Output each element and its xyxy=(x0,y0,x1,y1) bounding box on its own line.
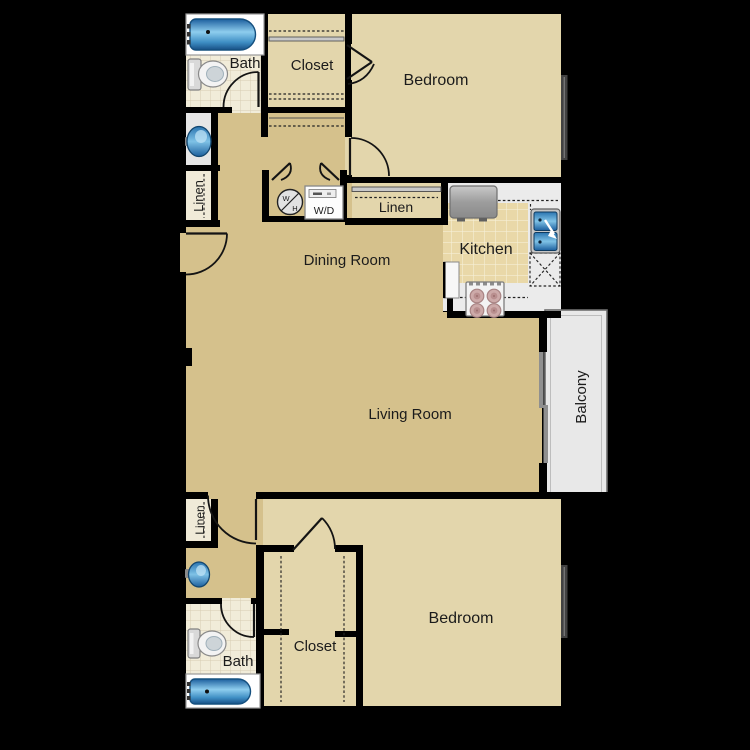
wall-segment xyxy=(261,113,268,137)
wall-segment xyxy=(180,541,218,548)
wall-segment xyxy=(561,8,568,75)
water-heater xyxy=(278,190,303,215)
label-dining-room: Dining Room xyxy=(304,252,391,269)
wall-segment xyxy=(335,631,356,637)
sink-drain xyxy=(538,240,541,243)
stove xyxy=(466,282,504,317)
label-living-room: Living Room xyxy=(368,406,451,423)
bath-top-threshold xyxy=(232,107,261,113)
wall-segment xyxy=(211,165,218,227)
tub-faucet xyxy=(187,682,191,686)
entry-threshold xyxy=(180,233,186,272)
tub-faucet xyxy=(187,696,191,700)
kitchen-sink xyxy=(531,209,560,253)
label-bath-top: Bath xyxy=(230,55,261,72)
bathtub-top xyxy=(186,14,264,55)
stove-knob xyxy=(483,283,487,286)
dishwasher xyxy=(443,262,459,298)
closet-rod xyxy=(269,37,344,41)
bathtub-basin xyxy=(190,19,255,50)
wall-segment xyxy=(262,170,269,222)
toilet-tank-highlight xyxy=(190,633,194,654)
label-closet-top: Closet xyxy=(291,57,334,74)
dishwasher-edge xyxy=(443,262,446,298)
washer-dryer-knob xyxy=(327,193,331,196)
wall-segment xyxy=(256,545,294,552)
toilet-tank-highlight xyxy=(190,63,194,86)
wall-segment xyxy=(180,8,186,233)
wall-segment xyxy=(256,492,608,499)
living-room-floor xyxy=(186,312,542,492)
bath-bottom-threshold xyxy=(222,598,251,604)
stove-knob xyxy=(469,283,473,286)
wall-segment xyxy=(180,499,186,712)
label-bedroom-top: Bedroom xyxy=(404,72,469,89)
bedroom-top-floor xyxy=(351,14,561,177)
label-linen-lower: Linen xyxy=(193,505,207,534)
tub-drain xyxy=(205,690,209,694)
dishwasher-body xyxy=(444,262,459,298)
wall-segment xyxy=(345,8,352,44)
refrigerator xyxy=(450,186,497,222)
label-wd: W/D xyxy=(314,205,335,217)
refrigerator-foot xyxy=(457,218,465,222)
refrigerator-body xyxy=(450,186,497,218)
wall-segment xyxy=(180,220,220,227)
wall-segment xyxy=(345,218,448,225)
wall-segment xyxy=(180,107,232,113)
refrigerator-foot xyxy=(479,218,487,222)
label-bath-bottom: Bath xyxy=(223,653,254,670)
sink-highlight xyxy=(196,565,206,576)
toilet-seat xyxy=(207,67,224,82)
wall-segment xyxy=(561,499,568,565)
linen-right-shelf xyxy=(352,187,441,192)
bathtub-basin xyxy=(190,679,250,704)
wall-segment xyxy=(447,297,453,318)
bedroom-bottom-floor xyxy=(263,499,561,707)
wall-segment xyxy=(180,8,568,14)
label-closet-bottom: Closet xyxy=(294,638,337,655)
wall-segment xyxy=(539,316,547,352)
stove-knob xyxy=(497,283,501,286)
wall-segment xyxy=(356,545,363,712)
wall-segment xyxy=(264,629,289,635)
wall-segment xyxy=(561,638,568,714)
label-linen-left: Linen xyxy=(191,180,206,212)
wall-segment xyxy=(180,272,186,499)
tub-faucet xyxy=(187,40,191,45)
balcony-slider-panel xyxy=(539,352,544,408)
toilet-bottom xyxy=(188,629,226,658)
toilet-seat xyxy=(206,637,222,651)
tub-faucet xyxy=(187,24,191,29)
wall-segment xyxy=(211,112,218,171)
label-wh-h: H xyxy=(292,204,297,213)
bathtub-bottom xyxy=(186,674,260,708)
tub-faucet xyxy=(187,689,191,693)
tub-drain xyxy=(206,30,210,34)
wall-segment xyxy=(180,492,208,499)
label-linen-right: Linen xyxy=(379,199,413,215)
wall-segment xyxy=(180,598,222,604)
wall-pilaster xyxy=(180,348,192,366)
floor-plan: Bath Closet Bedroom Linen W H W/D Linen … xyxy=(0,0,750,750)
wall-segment xyxy=(539,463,547,492)
wall-segment xyxy=(261,107,352,113)
label-bedroom-bottom: Bedroom xyxy=(429,610,494,627)
shelf-niche-floor xyxy=(269,113,345,137)
balcony-slider-panel xyxy=(544,405,549,463)
label-balcony: Balcony xyxy=(573,370,590,424)
wall-segment xyxy=(345,177,568,183)
hall-door-threshold xyxy=(208,492,256,499)
stove-knob xyxy=(476,283,480,286)
tub-faucet xyxy=(187,32,191,37)
wall-segment xyxy=(441,177,448,223)
sink-drain xyxy=(538,218,541,221)
stove-knob xyxy=(490,283,494,286)
sink-highlight xyxy=(195,130,207,143)
wall-segment xyxy=(345,113,352,137)
label-wh-w: W xyxy=(282,194,290,203)
label-kitchen: Kitchen xyxy=(459,241,512,258)
floor-plan-page: Bath Closet Bedroom Linen W H W/D Linen … xyxy=(0,0,750,750)
washer-dryer-control xyxy=(313,193,322,196)
